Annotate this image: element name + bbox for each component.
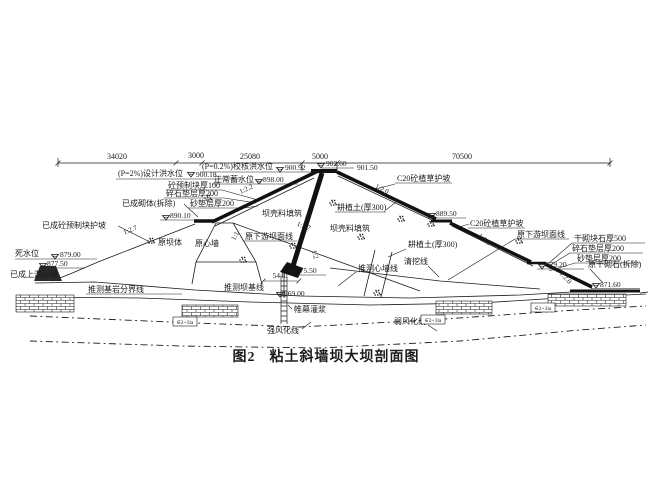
slope-1-1: 1:1 xyxy=(230,230,242,242)
clearing-line-label: 清挖线 xyxy=(404,256,428,266)
base-width-dim: 5440 xyxy=(273,271,288,280)
figure-title: 粘土斜墙坝大坝剖面图 xyxy=(270,350,420,365)
geo-code-2: ∈2+3la xyxy=(425,318,442,324)
old-dam-body-label: 原坝体 xyxy=(158,237,182,247)
upstream-berm-elevation: 890.10 xyxy=(170,211,191,220)
c20-grass-slope-label-right: C20砼植草护坡 xyxy=(470,218,523,228)
geo-code-3: ∈2+3la xyxy=(535,306,552,312)
rock-patch xyxy=(436,301,492,314)
c20-grass-slope-label-left: C20砼植草护坡 xyxy=(397,173,450,183)
topsoil-label-center: 耕植土(厚300) xyxy=(337,202,387,212)
dead-level-label: 死水位 xyxy=(15,248,39,258)
cofferdam-label: 已成上游围堰 xyxy=(10,269,58,279)
slope-1-2-2: 1:2.2 xyxy=(238,182,255,195)
dim-25080: 25080 xyxy=(240,152,260,161)
dim-34020: 34020 xyxy=(107,152,127,161)
grout-curtain-label: 帷幕灌浆 xyxy=(294,304,326,314)
dry-block-stone-label: 干砌块石厚500 xyxy=(574,233,626,243)
figure-caption: 图2粘土斜墙坝大坝剖面图 xyxy=(0,346,652,366)
normal-level-value: 898.00 xyxy=(263,175,284,184)
figure-number: 图2 xyxy=(233,350,256,365)
topsoil-label-right: 耕植土(厚300) xyxy=(408,239,458,249)
inferred-bedrock-label: 推测基岩分界线 xyxy=(88,284,144,294)
shell-fill-label-right: 坝壳料填筑 xyxy=(330,223,370,233)
slope-1-2-7-upstream: 1:2.7 xyxy=(122,224,139,237)
slope-1-2-0-lower: 1:2.0 xyxy=(558,270,574,286)
existing-precast-slope-label: 已成砼预制块护坡 xyxy=(42,220,106,230)
design-flood-label: (P=2%)设计洪水位 xyxy=(118,168,183,178)
old-downstream-face-label-right: 原下游坝面线 xyxy=(517,229,565,239)
gravel-cushion-label: 碎石垫层厚200 xyxy=(166,188,218,198)
old-core-wall-label: 原心墙 xyxy=(195,238,219,248)
crest-downstream-elevation: 901.50 xyxy=(357,163,378,172)
rock-patch xyxy=(182,305,238,317)
check-flood-label: (P=0.2%)校核洪水位 xyxy=(202,161,273,171)
sand-cushion-label: 砂垫层厚200 xyxy=(190,198,234,208)
rock-patch xyxy=(16,295,74,312)
normal-level-label: 正常蓄水位 xyxy=(214,174,254,184)
wall-bottom-elevation: 875.50 xyxy=(296,266,317,275)
downstream-berm1-elevation: 889.50 xyxy=(436,209,457,218)
crest-elevation: 902.60 xyxy=(326,159,347,168)
dimension-labels: 34020 3000 25080 5000 70500 xyxy=(107,151,472,161)
inferred-dam-base-label: 推测坝基线 xyxy=(224,282,264,292)
dam-thick-elements xyxy=(194,171,640,291)
old-downstream-face-label-left: 原下游坝面线 xyxy=(245,231,293,241)
platform-elevation: 871.60 xyxy=(600,280,621,289)
weak-weathering-line xyxy=(30,325,646,348)
dead-level-value2: 877.50 xyxy=(47,259,68,268)
figure-container: 34020 3000 25080 5000 70500 xyxy=(0,0,652,488)
gravel-cushion-label-right: 碎石垫层厚200 xyxy=(572,243,624,253)
strong-weathering-label: 强风化线 xyxy=(267,325,299,335)
rock-patch xyxy=(548,294,626,306)
inferred-core-line-label: 推测心墙线 xyxy=(358,263,398,273)
dead-level-value: 879.00 xyxy=(60,250,81,259)
old-dry-stone-label: 原干砌石(拆除) xyxy=(588,259,642,269)
foundation-elevation: 869.00 xyxy=(284,289,305,298)
right-toe-ground xyxy=(640,292,648,293)
dam-cross-section-drawing: 34020 3000 25080 5000 70500 xyxy=(0,0,652,488)
dim-70500: 70500 xyxy=(452,152,472,161)
downstream-berm2-elevation: 879.20 xyxy=(546,260,567,269)
check-flood-value: 900.92 xyxy=(285,163,306,172)
shell-fill-label-left: 坝壳料填筑 xyxy=(262,208,302,218)
dim-3000: 3000 xyxy=(188,151,204,160)
geo-code-1: ∈2+3la xyxy=(177,320,194,326)
existing-masonry-label: 已成砌体(拆除) xyxy=(122,198,176,208)
slope-1-2-wall: 1:2 xyxy=(310,249,320,260)
